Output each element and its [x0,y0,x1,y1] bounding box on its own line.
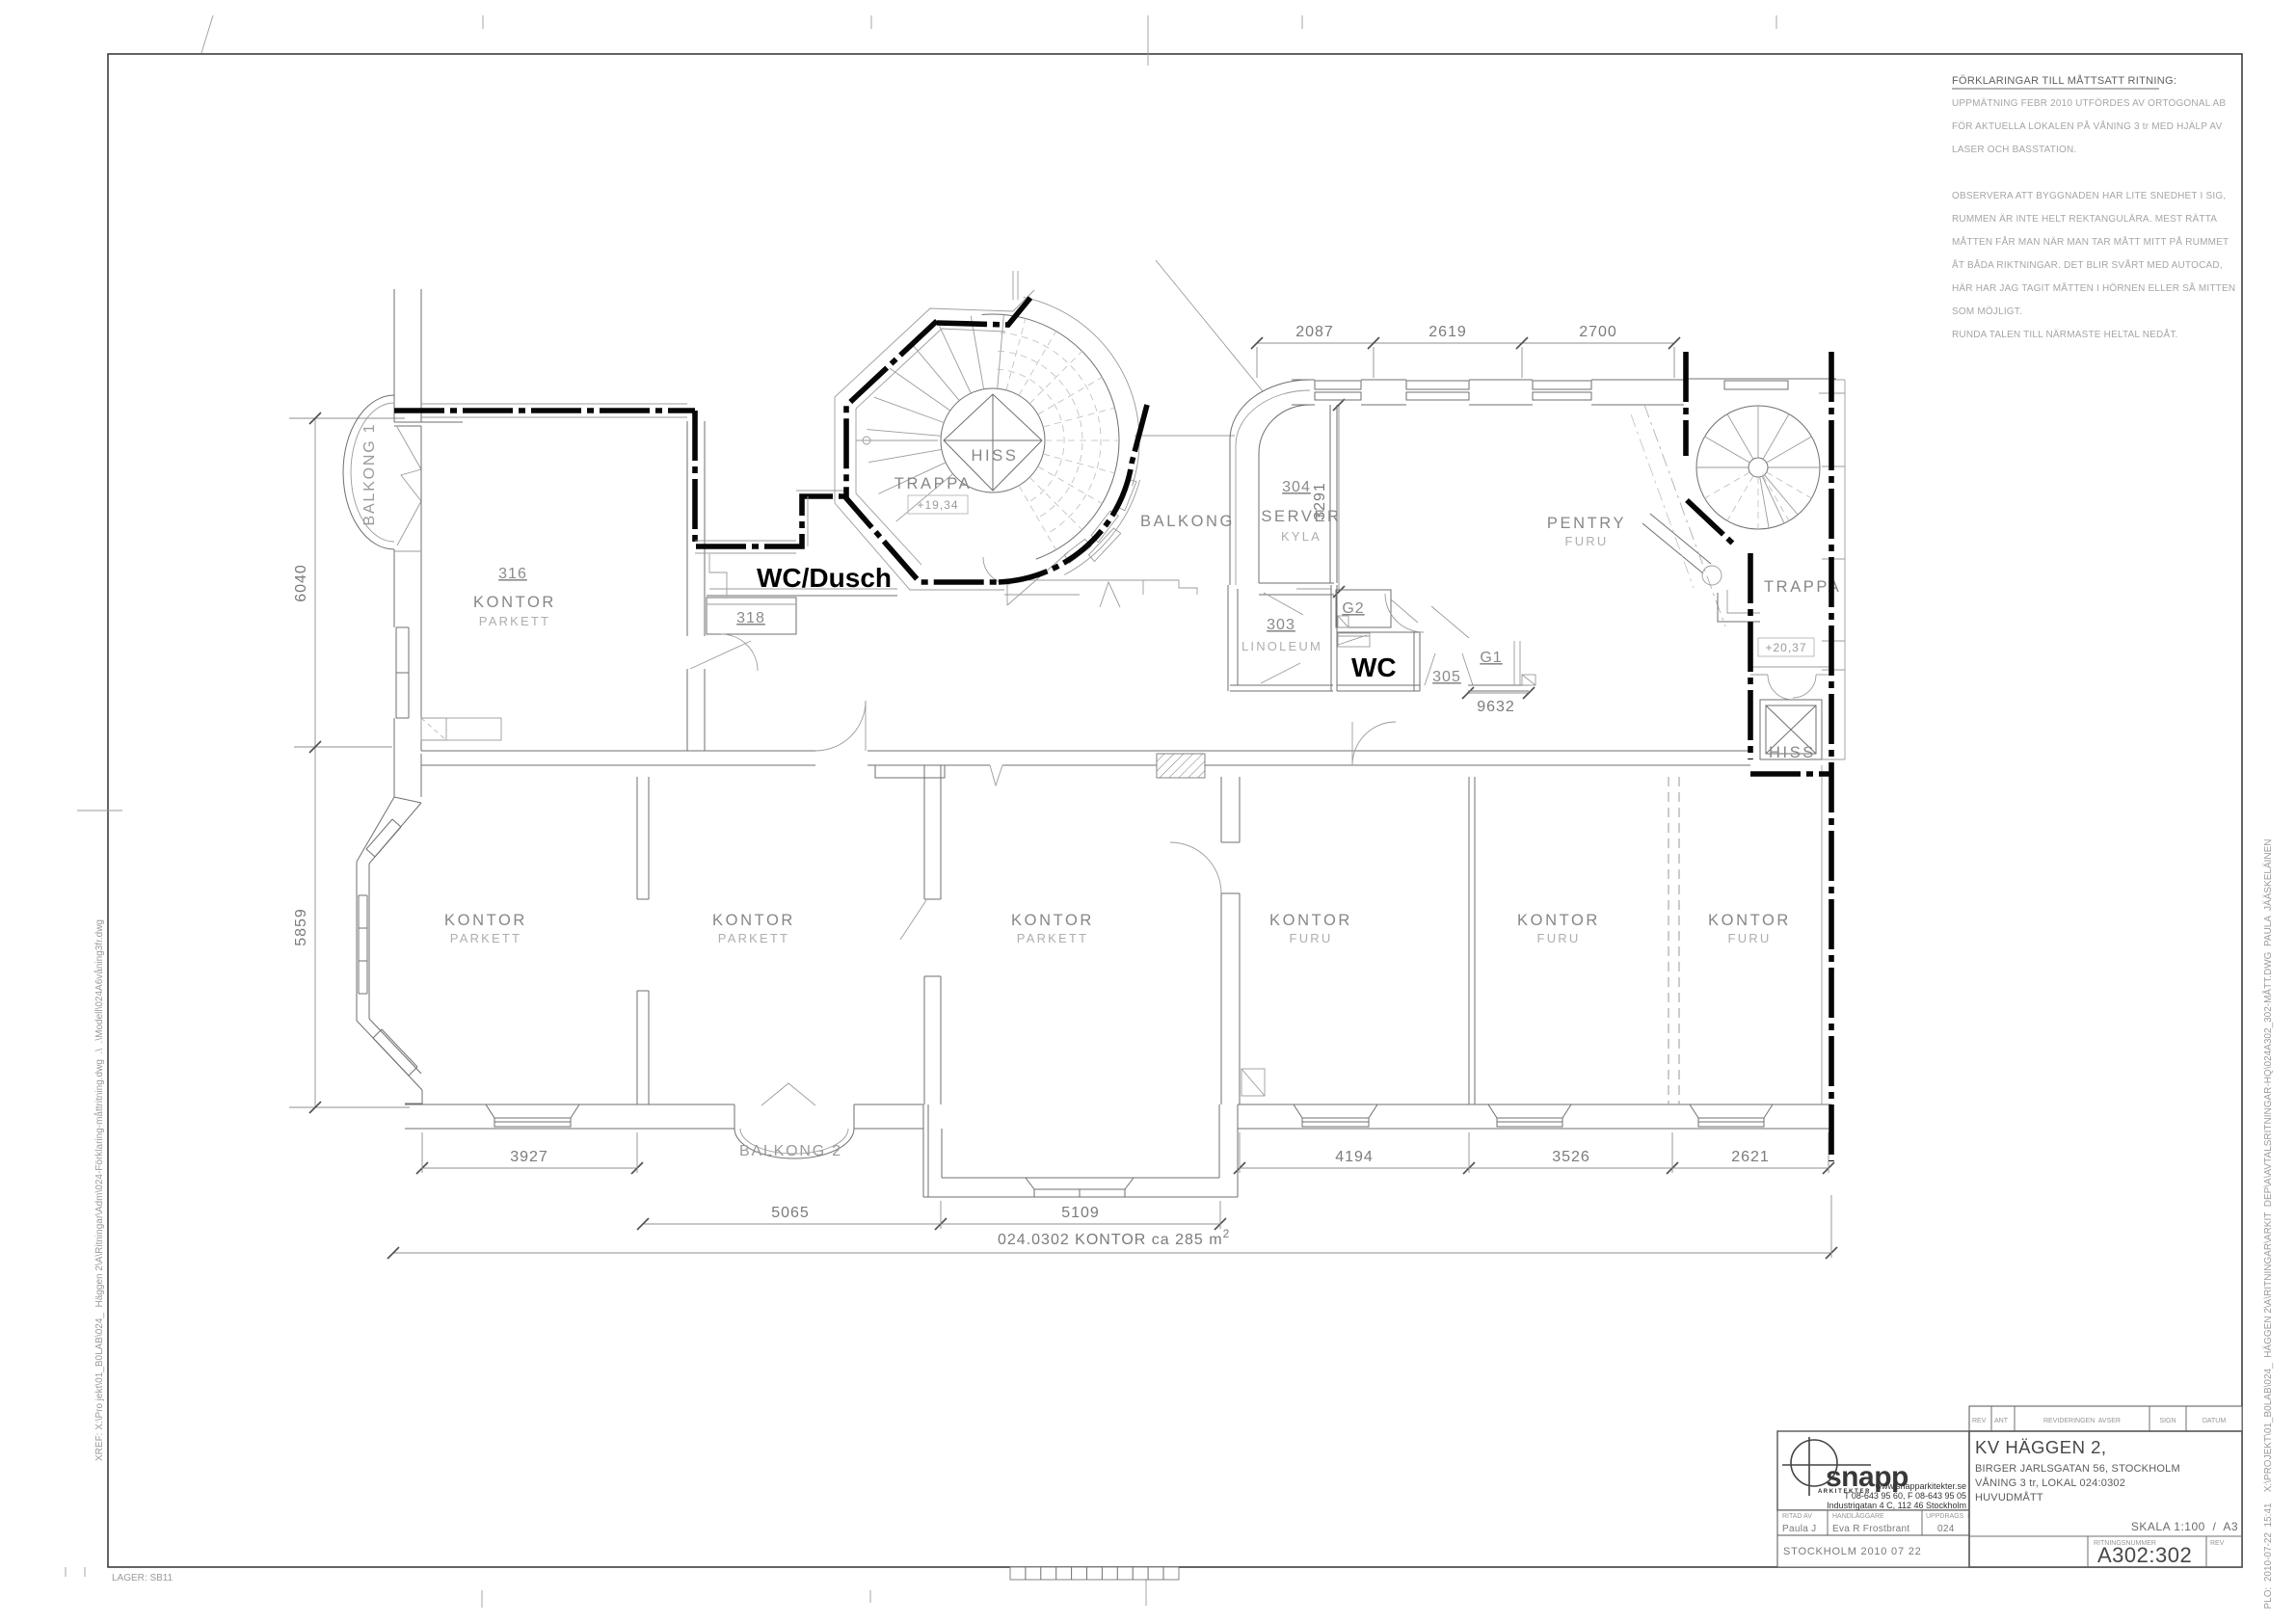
svg-text:304: 304 [1282,479,1311,495]
svg-text:SOM MÖJLIGT.: SOM MÖJLIGT. [1952,306,2022,317]
svg-text:REV: REV [1972,1418,1987,1424]
svg-text:G1: G1 [1480,650,1502,666]
svg-text:Industrigatan 4 C, 112 46 Stoc: Industrigatan 4 C, 112 46 Stockholm [1827,1501,1966,1510]
svg-text:FURU: FURU [1537,931,1581,945]
svg-text:+20,37: +20,37 [1765,641,1806,654]
svg-text:+19,34: +19,34 [917,498,958,512]
svg-text:SERVER: SERVER [1261,508,1341,525]
svg-text:SIGN: SIGN [2159,1418,2176,1424]
svg-text:024: 024 [1937,1524,1955,1534]
svg-text:LINOLEUM: LINOLEUM [1241,639,1322,653]
svg-text:3526: 3526 [1552,1149,1590,1165]
svg-text:5859: 5859 [293,908,309,946]
svg-text:PARKETT: PARKETT [479,614,550,628]
svg-text:PENTRY: PENTRY [1547,515,1626,532]
svg-text:KONTOR: KONTOR [1011,912,1094,929]
svg-text:KONTOR: KONTOR [1708,912,1791,929]
svg-text:KONTOR: KONTOR [473,594,556,611]
svg-text:PARKETT: PARKETT [450,931,521,945]
svg-text:A302:302: A302:302 [2097,1543,2192,1567]
svg-text:Paula J: Paula J [1782,1524,1816,1534]
svg-text:REVIDERINGEN AVSER: REVIDERINGEN AVSER [2043,1418,2121,1424]
svg-text:MÅTTEN FÅR MAN NÄR MAN TAR MÅT: MÅTTEN FÅR MAN NÄR MAN TAR MÅTT MITT PÅ … [1952,235,2229,248]
svg-text:HISS: HISS [1769,744,1816,761]
svg-text:KYLA: KYLA [1281,529,1322,544]
svg-text:5065: 5065 [771,1205,810,1221]
svg-text:316: 316 [498,566,527,582]
svg-text:HISS: HISS [972,447,1019,465]
svg-text:KV HÄGGEN 2,: KV HÄGGEN 2, [1975,1437,2107,1457]
svg-text:RUNDA TALEN TILL NÄRMASTE HELT: RUNDA TALEN TILL NÄRMASTE HELTAL NEDÅT. [1952,328,2178,340]
svg-text:HANDLÄGGARE: HANDLÄGGARE [1832,1512,1884,1520]
svg-text:UPPMÄTNING FEBR 2010 UTFÖRDES: UPPMÄTNING FEBR 2010 UTFÖRDES AV ORTOGON… [1952,97,2226,109]
svg-text:3927: 3927 [510,1149,548,1165]
svg-text:DATUM: DATUM [2203,1418,2227,1424]
svg-text:Eva R Frostbrant: Eva R Frostbrant [1832,1524,1909,1534]
svg-text:2087: 2087 [1295,324,1334,340]
svg-text:WC/Dusch: WC/Dusch [757,563,892,593]
svg-text:2700: 2700 [1579,324,1617,340]
svg-text:LAGER: SB11: LAGER: SB11 [112,1573,174,1583]
svg-text:ANT: ANT [1994,1418,2009,1424]
svg-text:FURU: FURU [1290,931,1333,945]
svg-text:KONTOR: KONTOR [712,912,795,929]
svg-text:SKALA 1:100 / A3: SKALA 1:100 / A3 [2131,1520,2238,1533]
svg-text:XREF: X:\Pro jekt\01_B0LAB\024: XREF: X:\Pro jekt\01_B0LAB\024_ Häggen 2… [93,919,105,1461]
svg-text:BALKONG 1: BALKONG 1 [361,423,378,526]
svg-text:ÅT BÅDA RIKTNINGAR. DET BLIR S: ÅT BÅDA RIKTNINGAR. DET BLIR SVÅRT MED A… [1952,258,2223,271]
svg-text:4194: 4194 [1335,1149,1374,1165]
svg-text:FÖR AKTUELLA LOKALEN PÅ VÅNING: FÖR AKTUELLA LOKALEN PÅ VÅNING 3 tr MED … [1952,120,2223,132]
svg-text:2619: 2619 [1428,324,1467,340]
svg-text:KONTOR: KONTOR [444,912,527,929]
svg-text:BALKONG: BALKONG [1140,513,1235,530]
svg-text:303: 303 [1267,617,1295,633]
svg-text:www.snapparkitekter.se: www.snapparkitekter.se [1874,1481,1966,1491]
svg-text:6040: 6040 [293,564,309,602]
svg-text:T 08-643 95 60, F 08-643 95 05: T 08-643 95 60, F 08-643 95 05 [1844,1491,1966,1501]
svg-text:FURU: FURU [1728,931,1772,945]
svg-text:REV: REV [2210,1540,2225,1547]
svg-text:5109: 5109 [1061,1205,1100,1221]
svg-text:WC: WC [1351,652,1397,682]
svg-text:HUVUDMÅTT: HUVUDMÅTT [1975,1491,2043,1503]
svg-text:PARKETT: PARKETT [1017,931,1088,945]
svg-text:FURU: FURU [1565,534,1609,548]
svg-text:KONTOR: KONTOR [1269,912,1352,929]
svg-text:G2: G2 [1342,600,1364,617]
svg-text:TRAPPA: TRAPPA [894,475,972,492]
svg-text:KONTOR: KONTOR [1517,912,1600,929]
svg-text:RITAD AV: RITAD AV [1782,1513,1812,1520]
svg-text:HÄR HAR JAG TAGIT MÅTTEN I HÖR: HÄR HAR JAG TAGIT MÅTTEN I HÖRNEN ELLER … [1952,281,2235,294]
svg-text:FÖRKLARINGAR TILL MÅTTSATT RIT: FÖRKLARINGAR TILL MÅTTSATT RITNING: [1952,74,2176,87]
svg-text:RUMMEN ÄR INTE HELT REKTANGULÄ: RUMMEN ÄR INTE HELT REKTANGULÄRA. MEST R… [1952,213,2217,225]
svg-text:BIRGER JARLSGATAN 56, STOCKHOL: BIRGER JARLSGATAN 56, STOCKHOLM [1975,1463,2180,1475]
svg-text:PLO: 2010-07-22 15:41 X:\: PLO: 2010-07-22 15:41 X:\PROJEKT\01_B0LA… [2261,838,2274,1609]
svg-text:318: 318 [736,610,765,626]
svg-text:VÅNING 3 tr, LOKAL 024:0302: VÅNING 3 tr, LOKAL 024:0302 [1975,1477,2125,1489]
svg-text:LASER OCH BASSTATION.: LASER OCH BASSTATION. [1952,145,2076,155]
svg-text:STOCKHOLM 2010 07 22: STOCKHOLM 2010 07 22 [1783,1546,1922,1557]
svg-text:9632: 9632 [1477,699,1515,715]
svg-text:PARKETT: PARKETT [718,931,789,945]
svg-text:2621: 2621 [1731,1149,1770,1165]
svg-text:OBSERVERA ATT BYGGNADEN HAR LI: OBSERVERA ATT BYGGNADEN HAR LITE SNEDHET… [1952,191,2226,201]
svg-text:BALKONG 2: BALKONG 2 [739,1143,842,1159]
svg-text:305: 305 [1432,669,1461,685]
